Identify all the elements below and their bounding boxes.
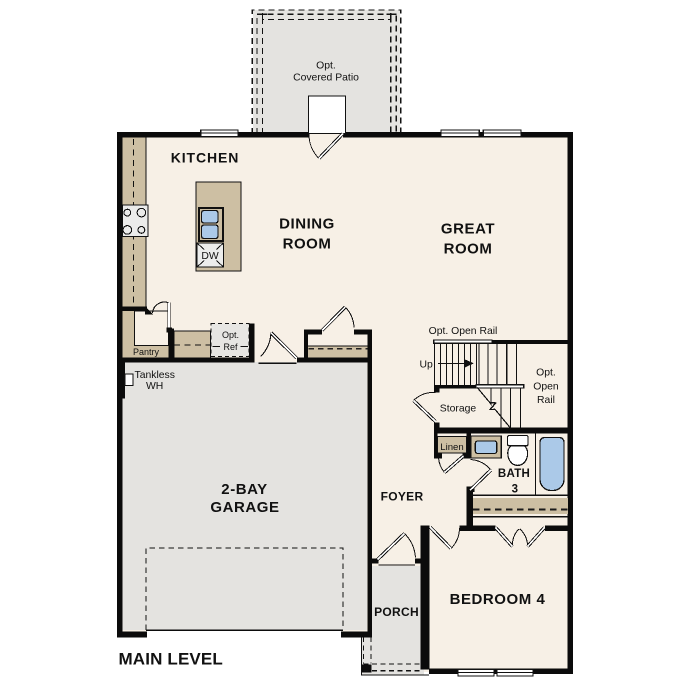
svg-text:Tankless: Tankless (135, 370, 175, 381)
svg-text:DINING: DINING (279, 216, 335, 233)
svg-text:Opt. Open Rail: Opt. Open Rail (429, 326, 498, 337)
svg-text:PORCH: PORCH (374, 605, 419, 619)
svg-text:Linen: Linen (440, 442, 463, 453)
svg-text:Opt.: Opt. (536, 368, 556, 379)
svg-text:Opt.: Opt. (222, 330, 239, 340)
svg-text:MAIN LEVEL: MAIN LEVEL (119, 649, 223, 668)
svg-text:Storage: Storage (440, 404, 477, 415)
svg-text:GARAGE: GARAGE (210, 499, 279, 516)
svg-text:GREAT: GREAT (441, 220, 495, 237)
svg-text:Open: Open (533, 382, 559, 393)
svg-text:ROOM: ROOM (444, 240, 493, 257)
svg-text:Up: Up (420, 360, 434, 371)
svg-text:Opt.: Opt. (316, 61, 336, 72)
svg-text:3: 3 (512, 484, 519, 496)
svg-text:WH: WH (146, 381, 163, 392)
svg-text:DW: DW (201, 251, 219, 262)
svg-text:BEDROOM 4: BEDROOM 4 (450, 591, 546, 608)
svg-text:FOYER: FOYER (381, 490, 424, 504)
svg-text:Pantry: Pantry (133, 347, 160, 357)
svg-text:Covered Patio: Covered Patio (293, 72, 359, 83)
svg-text:Rail: Rail (537, 395, 555, 406)
svg-text:BATH: BATH (498, 468, 530, 480)
svg-text:ROOM: ROOM (283, 235, 332, 252)
svg-text:KITCHEN: KITCHEN (171, 150, 240, 166)
svg-text:Ref: Ref (223, 342, 238, 352)
svg-text:2-BAY: 2-BAY (221, 481, 267, 498)
